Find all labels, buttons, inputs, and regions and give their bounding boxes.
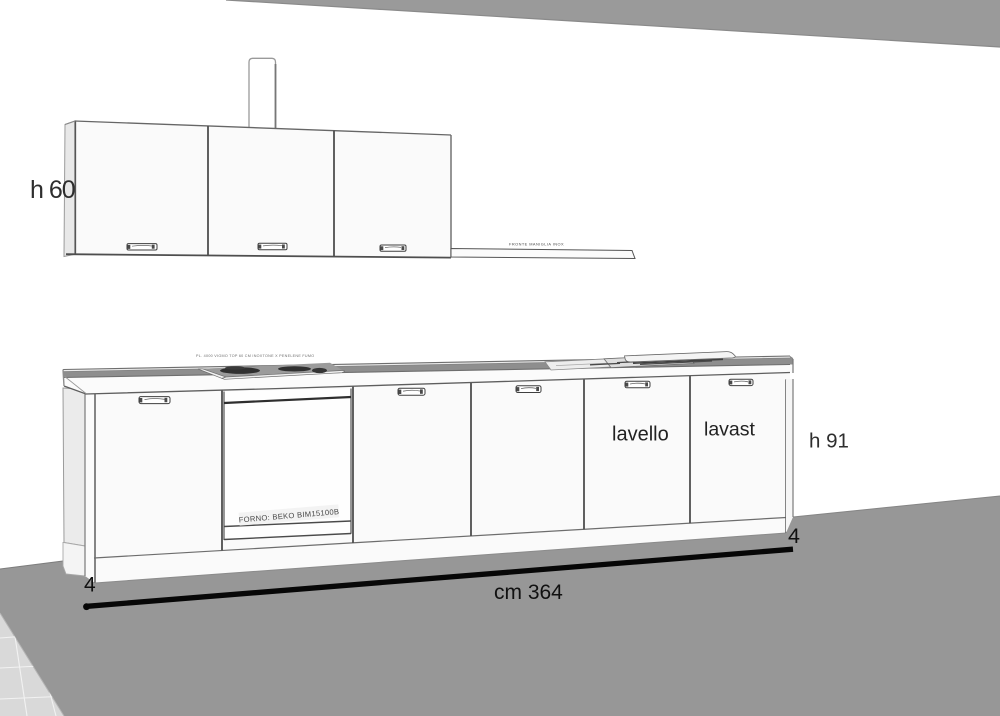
svg-text:h 91: h 91	[809, 430, 849, 453]
svg-text:4: 4	[788, 524, 800, 548]
svg-text:PL. 4000 VIGMO TOP 60 CM INOXT: PL. 4000 VIGMO TOP 60 CM INOXTONE X PENE…	[196, 354, 314, 358]
svg-text:cm 364: cm 364	[494, 581, 563, 604]
svg-text:FRONTE MANIGLIA INOX: FRONTE MANIGLIA INOX	[509, 241, 564, 246]
svg-text:lavello: lavello	[612, 424, 669, 446]
svg-text:4: 4	[84, 574, 96, 597]
svg-text:lavast: lavast	[704, 419, 756, 441]
svg-text:h 60: h 60	[30, 176, 75, 204]
